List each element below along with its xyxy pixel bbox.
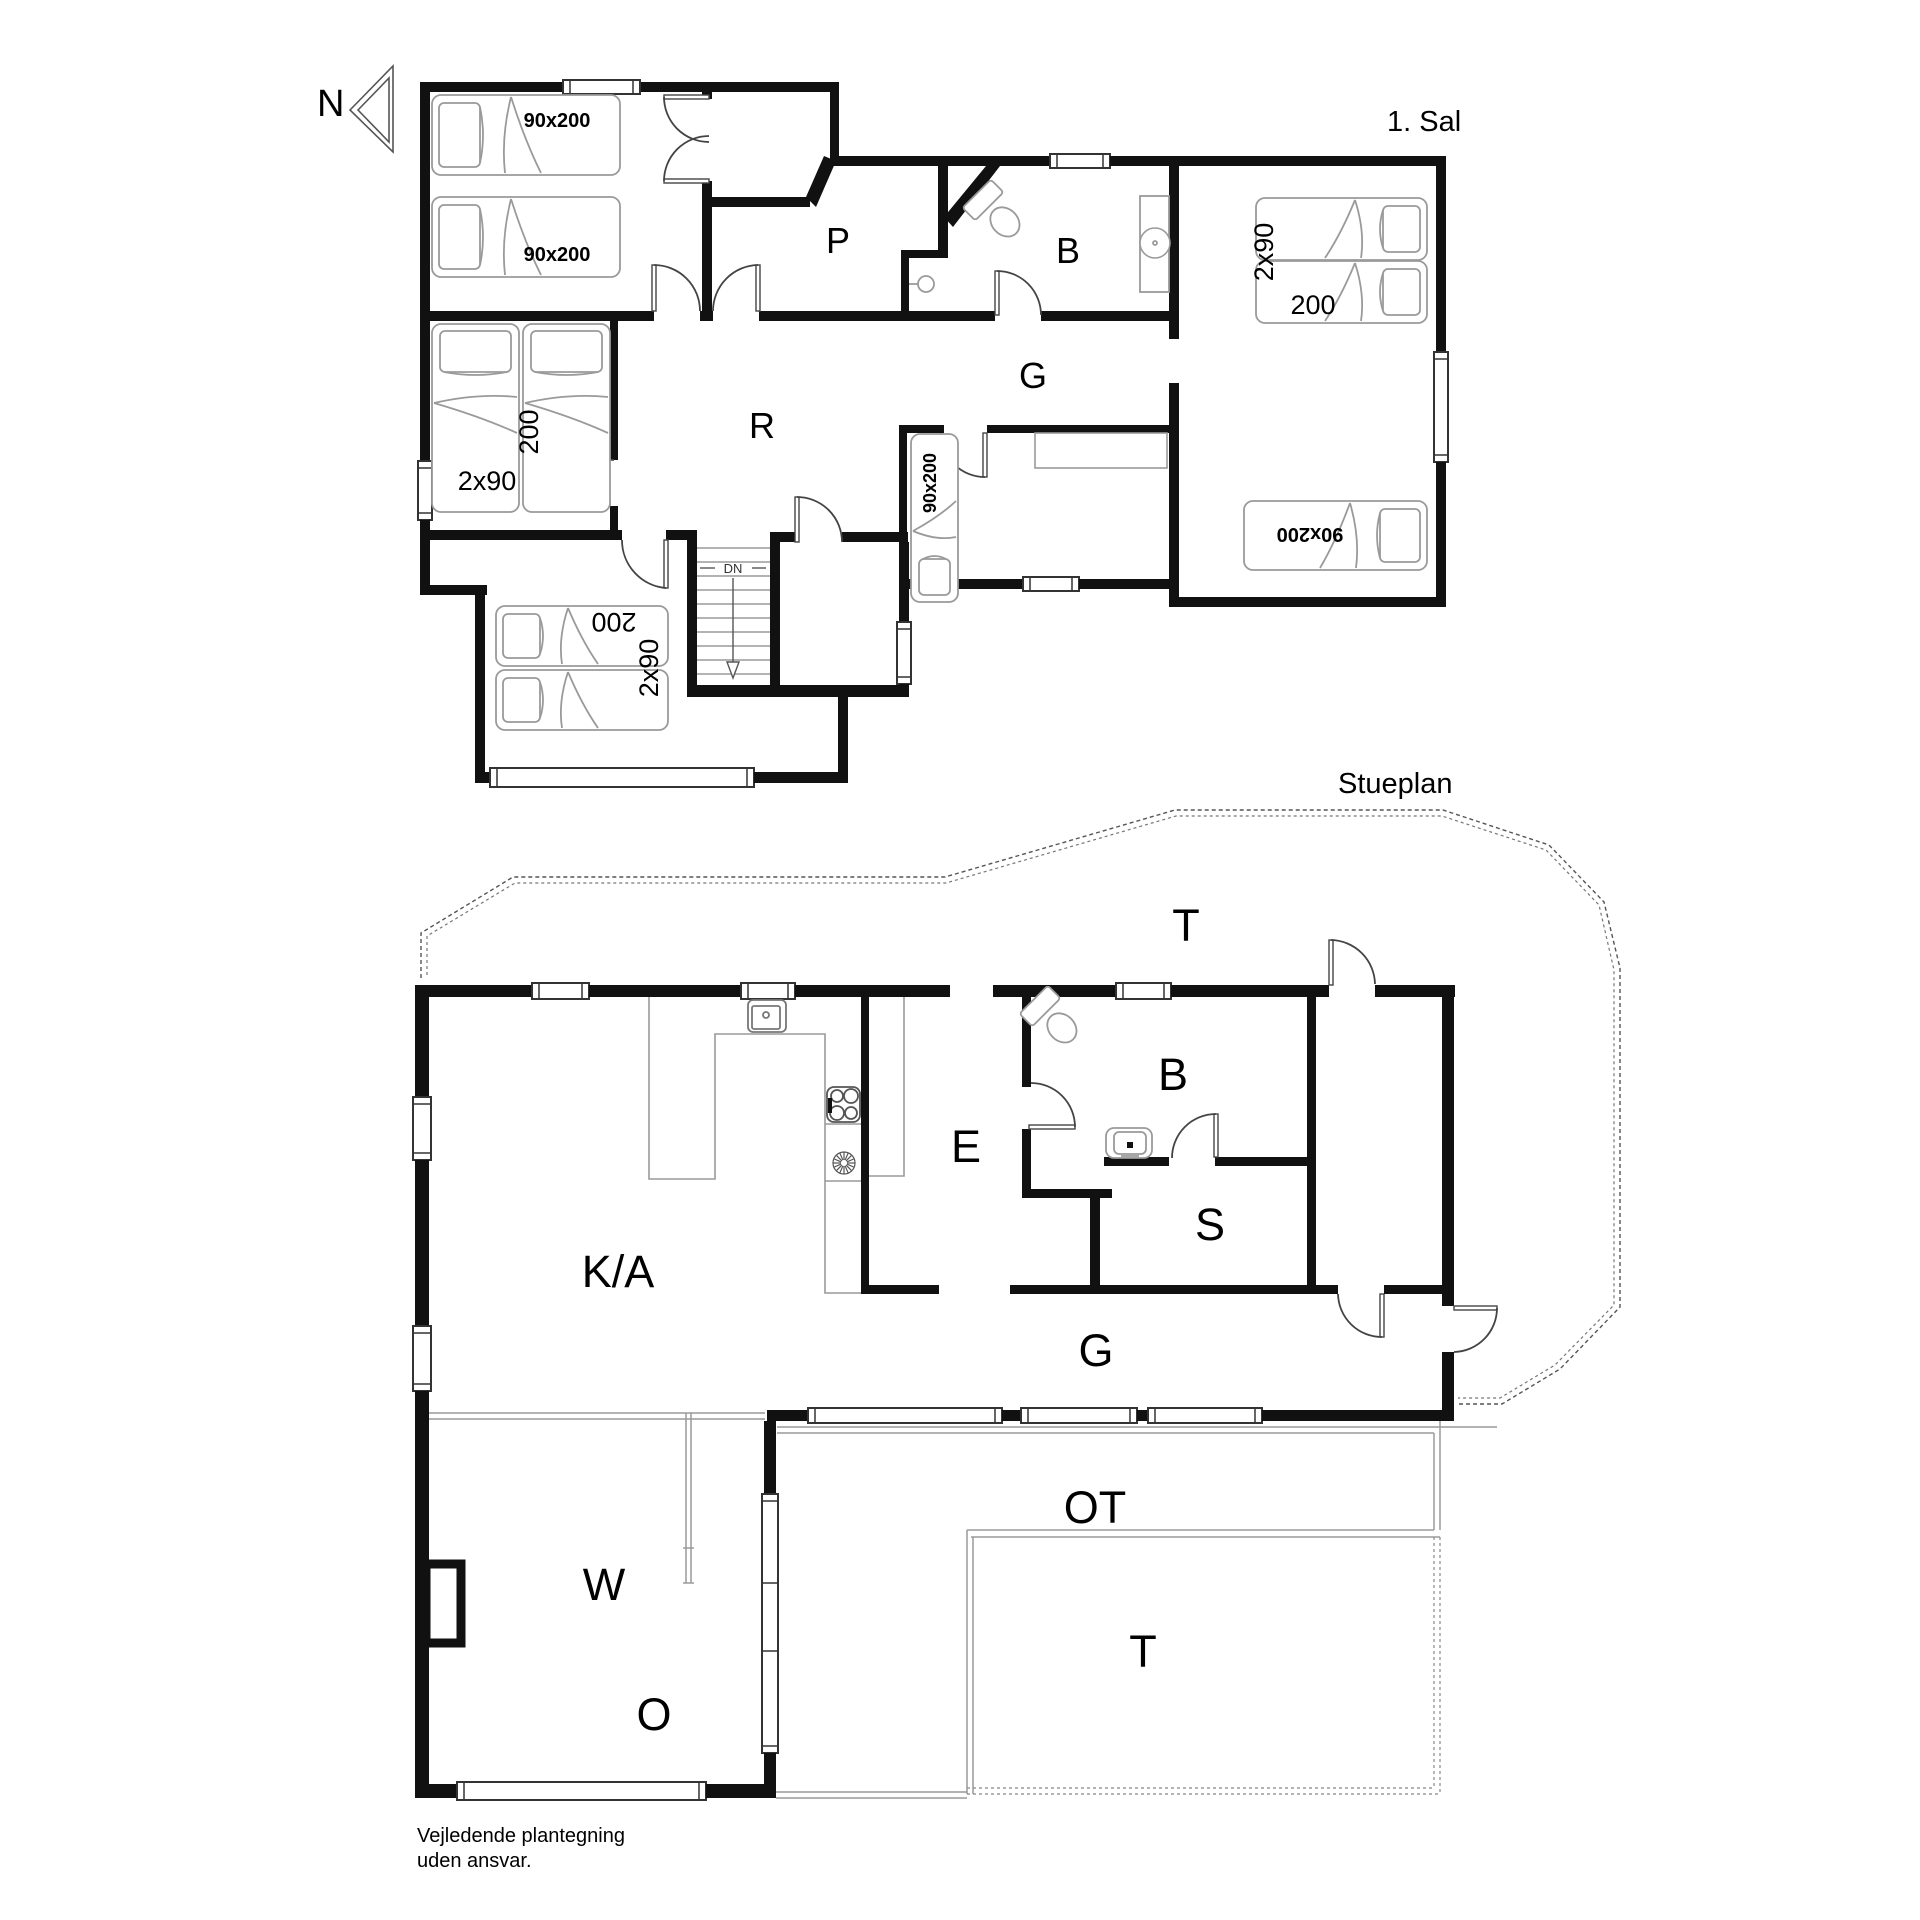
svg-text:Stueplan: Stueplan (1338, 768, 1453, 800)
svg-text:Vejledende plantegning: Vejledende plantegning (417, 1825, 625, 1847)
svg-text:G: G (1078, 1325, 1113, 1376)
svg-text:2x90: 2x90 (1249, 223, 1279, 282)
svg-text:O: O (636, 1689, 671, 1740)
svg-text:200: 200 (591, 607, 636, 637)
svg-text:K/A: K/A (582, 1246, 655, 1297)
svg-text:90x200: 90x200 (524, 110, 591, 132)
svg-text:200: 200 (1290, 290, 1335, 320)
svg-text:200: 200 (514, 409, 544, 454)
svg-text:uden ansvar.: uden ansvar. (417, 1850, 532, 1872)
svg-text:2x90: 2x90 (634, 639, 664, 698)
svg-text:T: T (1129, 1626, 1157, 1677)
svg-text:R: R (749, 405, 775, 446)
svg-text:T: T (1172, 900, 1200, 951)
svg-text:P: P (826, 220, 850, 261)
svg-text:1. Sal: 1. Sal (1387, 106, 1461, 138)
svg-text:S: S (1195, 1199, 1225, 1250)
svg-text:B: B (1158, 1049, 1188, 1100)
svg-text:E: E (951, 1121, 981, 1172)
svg-text:90x200: 90x200 (1277, 523, 1344, 545)
svg-text:2x90: 2x90 (458, 466, 517, 496)
svg-text:W: W (583, 1559, 626, 1610)
svg-text:90x200: 90x200 (920, 453, 940, 513)
svg-text:N: N (317, 83, 344, 125)
svg-text:90x200: 90x200 (524, 244, 591, 266)
svg-text:G: G (1019, 355, 1047, 396)
svg-text:B: B (1056, 230, 1080, 271)
svg-text:DN: DN (724, 561, 743, 576)
svg-text:OT: OT (1064, 1482, 1127, 1533)
